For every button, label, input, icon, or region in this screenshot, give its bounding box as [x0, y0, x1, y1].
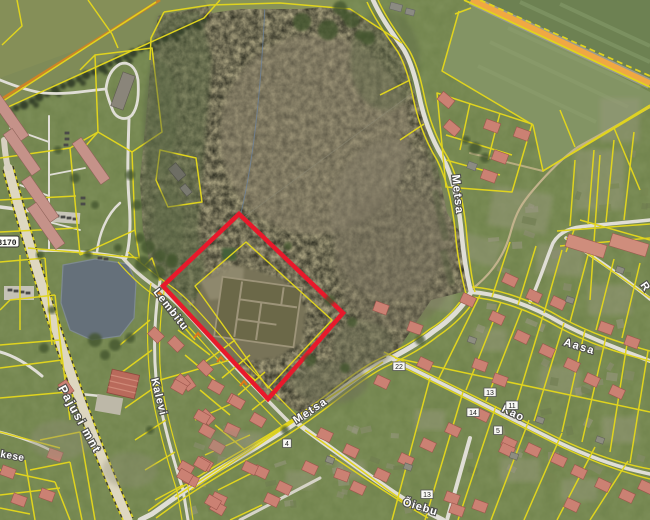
svg-text:8170: 8170	[0, 239, 17, 248]
svg-text:13: 13	[423, 492, 431, 499]
svg-text:22: 22	[395, 364, 403, 371]
svg-text:14: 14	[469, 410, 477, 417]
svg-text:4: 4	[285, 441, 289, 448]
svg-text:11: 11	[508, 403, 515, 410]
svg-text:13: 13	[486, 390, 494, 397]
svg-text:5: 5	[496, 428, 500, 435]
